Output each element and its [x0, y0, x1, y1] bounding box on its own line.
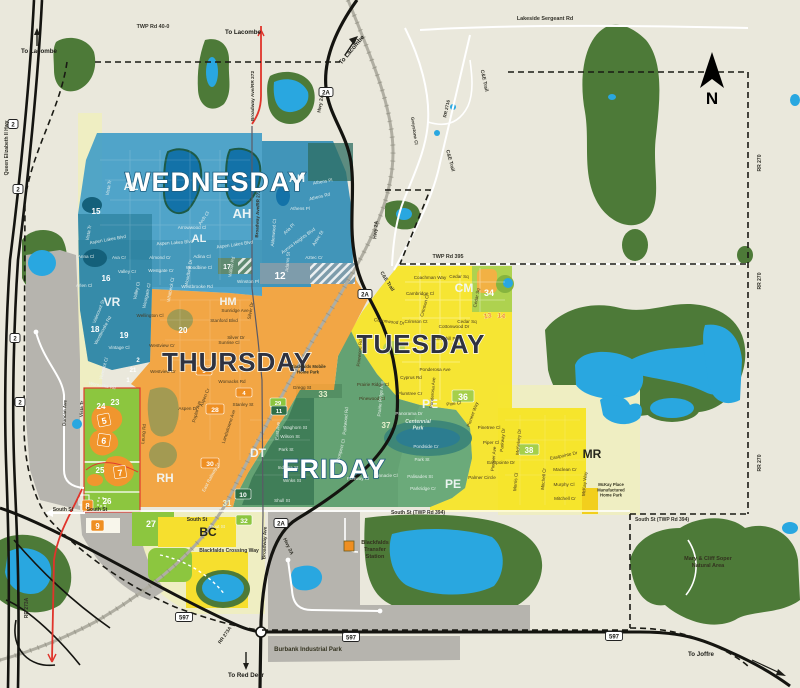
label-south-st-twp-rd-394: South St (TWP Rd 394)	[391, 510, 445, 516]
label-thursday: THURSDAY	[162, 347, 312, 377]
label-waghorn-st: Waghorn St	[283, 425, 308, 430]
svg-text:9: 9	[95, 522, 100, 531]
label-wilson-st: Wilson St	[280, 434, 300, 439]
label-al: AL	[124, 181, 139, 193]
label-20: 20	[179, 326, 188, 335]
label-pinewood-cl: Pinewood Cl	[359, 396, 385, 401]
label-vista-tr: Vista Tr	[79, 401, 85, 418]
label-stanley-st: Stanley St	[233, 402, 255, 407]
label-mckay-place-manufactured-home-park: McKay PlaceManufacturedHome Park	[597, 482, 625, 498]
label-rh: RH	[156, 471, 173, 485]
label-cottonwood-dr: Cottonwood Dr	[439, 324, 470, 329]
svg-text:597: 597	[179, 615, 190, 621]
label-plumtree-cr: Plumtree Cr	[398, 391, 423, 396]
label-26: 26	[103, 497, 112, 506]
zone-box-28: 28	[206, 404, 224, 414]
label-portway-cl: Portway Cl	[347, 476, 369, 481]
label-cedar-sq: Cedar Sq	[449, 274, 469, 279]
label-prairie-ridge-cl: Prairie Ridge Cl	[357, 382, 389, 387]
label-wednesday: WEDNESDAY	[125, 167, 307, 197]
label-vr: VR	[104, 295, 121, 309]
zone-box-4: 4	[236, 388, 252, 397]
label-14: 14	[497, 313, 506, 321]
label-34: 34	[484, 288, 494, 298]
zone-box-29: 29	[270, 398, 286, 407]
label-south-st: South St	[53, 507, 74, 513]
zone-box-38: 38	[519, 444, 539, 455]
label-23: 23	[111, 398, 120, 407]
label-westview-cr: Westview Cr	[150, 369, 176, 374]
label-almond-cr: Almond Cr	[149, 255, 171, 260]
label-24: 24	[97, 402, 106, 411]
highway-shield-2: 2	[13, 185, 23, 194]
map-stage: 34283029111032383656789 22222A2A2A597597…	[0, 0, 800, 688]
label-broadway-ave: Broadway Ave	[261, 526, 268, 559]
label-adina-cl: Adina Cl	[193, 254, 210, 259]
label-stanford-blvd: Stanford Blvd	[210, 318, 238, 323]
label-westgate-cr: Westgate Cr	[148, 268, 174, 273]
label-pinnacle-cl: Pinnacle Cl	[374, 473, 397, 478]
label-eastpointe-dr: Eastpointe Dr	[487, 460, 515, 465]
roundabout	[256, 627, 266, 637]
label-mitchell-cr: Mitchell Cr	[554, 496, 576, 501]
label-33: 33	[319, 390, 328, 399]
zone-box-6: 6	[97, 433, 111, 447]
label-al: AL	[192, 233, 207, 245]
label-twp-rd-40-0: TWP Rd 40-0	[137, 24, 170, 30]
highway-shield-2a: 2A	[274, 519, 288, 528]
label-coachman-way: Coachman Way	[414, 275, 447, 280]
label-to-lacombe: To Lacombe	[225, 29, 262, 36]
label-anna-cl: Anna Cl	[78, 254, 94, 259]
label-15: 15	[92, 207, 101, 216]
label-south-st: South St	[87, 507, 108, 513]
label-cm: CM	[455, 281, 474, 295]
svg-text:10: 10	[239, 492, 247, 499]
label-rr-273a: RR 273A	[24, 597, 30, 618]
label-tuesday: TUESDAY	[357, 329, 486, 359]
highway-shield-2: 2	[10, 334, 20, 343]
label-rr-270: RR 270	[757, 154, 763, 171]
label-13: 13	[483, 312, 492, 320]
label-vintage-cl: Vintage Cl	[108, 345, 129, 350]
label-park-st: Park St	[278, 447, 294, 452]
highway-shield-597: 597	[343, 633, 360, 642]
label-37: 37	[382, 421, 391, 430]
label-indiana-st: Indiana St	[278, 465, 299, 470]
zone-box-9: 9	[91, 520, 104, 531]
label-twp-rd-395: TWP Rd 395	[432, 254, 463, 260]
label-pinetree-cl: Pinetree Cl	[478, 425, 501, 430]
svg-text:597: 597	[609, 634, 620, 640]
label-shull-st: Shull St	[274, 498, 291, 503]
label-n: N	[706, 89, 718, 108]
label-murphy-cl: Murphy Cl	[554, 482, 575, 487]
label-to-red-deer: To Red Deer	[228, 672, 265, 679]
label-blackfalds-crossing-way: Blackfalds Crossing Way	[199, 548, 259, 554]
label-panorama-dr: Panorama Dr	[395, 411, 423, 416]
label-burbank-industrial-park: Burbank Industrial Park	[274, 647, 342, 653]
label-arlen-cl: Arlen Cl	[76, 283, 92, 288]
label-piper-cl: Piper Cl	[483, 440, 499, 445]
label-duncan-ave: Duncan Ave	[62, 400, 68, 426]
label-ah: AH	[289, 173, 305, 185]
label-12: 12	[274, 271, 286, 282]
svg-text:32: 32	[240, 518, 248, 525]
label-winston-pl: Winston Pl	[237, 279, 259, 284]
highway-shield-597: 597	[606, 632, 623, 641]
label-19: 19	[120, 331, 129, 340]
label-rr-270: RR 270	[757, 454, 763, 471]
transfer-station-icon	[344, 541, 354, 551]
label-27: 27	[146, 519, 156, 529]
label-16: 16	[102, 274, 111, 283]
label-cyprus-rd: Cyprus Rd	[400, 375, 422, 380]
label-cedar-sq: Cedar Sq	[457, 319, 477, 324]
label-aztec-cr: Aztec Cr	[305, 255, 323, 260]
svg-text:2A: 2A	[361, 292, 369, 298]
svg-text:2A: 2A	[277, 521, 285, 527]
label-maclean-cr: Maclean Cr	[553, 467, 577, 472]
label-lakeside-sergeant-rd: Lakeside Sergeant Rd	[517, 16, 573, 22]
svg-text:28: 28	[211, 407, 219, 414]
label-mr: MR	[583, 447, 602, 461]
highway-shield-2: 2	[15, 398, 25, 407]
svg-text:11: 11	[276, 409, 283, 415]
zone-box-5: 5	[97, 413, 111, 427]
label-ava-cr: Ava Cr	[112, 255, 126, 260]
label-cambridge-cl: Cambridge Cl	[406, 291, 434, 296]
label-park-st: Park St	[414, 457, 430, 462]
label-palisades-st: Palisades St	[407, 474, 433, 479]
zone-box-11: 11	[271, 406, 287, 415]
highway-shield-2a: 2A	[358, 290, 372, 299]
svg-text:38: 38	[525, 446, 534, 455]
zone-box-7: 7	[113, 465, 127, 479]
label-south-st-twp-rd-394: South St (TWP Rd 394)	[635, 517, 689, 523]
label-pe: PE	[445, 477, 461, 491]
label-gregg-st: Gregg St	[293, 385, 312, 390]
highway-shield-597: 597	[176, 613, 193, 622]
label-arrowwood-cl: Arrowwood Cl	[178, 225, 207, 230]
label-pondside-cr: Pondside Cr	[413, 444, 439, 449]
label-westview-cr: Westview Cr	[149, 343, 175, 348]
label-broadway-ave-rr-272: Broadway Ave/RR 272	[250, 71, 256, 122]
label-athens-pl: Athens Pl	[290, 206, 310, 211]
label-sunridge-ave: Sunridge Ave	[221, 308, 249, 313]
label-palmer-circle: Palmer Circle	[468, 475, 496, 480]
svg-text:597: 597	[346, 635, 357, 641]
label-queen-elizabeth-ii-hwy: Queen Elizabeth II Hwy	[4, 120, 10, 175]
label-sunrise-cl: Sunrise Cl	[218, 340, 239, 345]
label-south-st: South St	[187, 517, 208, 523]
label-trout-st: Trout St	[209, 524, 226, 529]
label-ponderosa-ave: Ponderosa Ave	[419, 367, 451, 372]
label-parkridge-cr: Parkridge Cr	[410, 486, 436, 491]
label-churchill-pl: Churchill Pl	[433, 336, 456, 341]
label-ah: AH	[233, 206, 252, 221]
label-crimson-ct: Crimson Ct	[405, 319, 429, 324]
label-winks-st: Winks St	[283, 478, 302, 483]
zone-box-10: 10	[235, 489, 251, 499]
label-21: 21	[130, 368, 137, 374]
label-25: 25	[96, 466, 105, 475]
label-wellington-cl: Wellington Cl	[137, 313, 164, 318]
label-31: 31	[223, 499, 232, 508]
label-valley-cr: Valley Cr	[118, 269, 137, 274]
label-rr-270: RR 270	[757, 272, 763, 289]
label-dt: DT	[250, 446, 267, 460]
label-to-joffre: To Joffre	[688, 651, 715, 658]
label-hm: HM	[219, 296, 236, 308]
label-to-lacombe: To Lacombe	[21, 48, 58, 55]
blackfalds-zone-map: 34283029111032383656789 22222A2A2A597597…	[0, 0, 800, 688]
label-womacks-rd: Womacks Rd	[218, 379, 246, 384]
zone-box-32: 32	[236, 515, 252, 525]
